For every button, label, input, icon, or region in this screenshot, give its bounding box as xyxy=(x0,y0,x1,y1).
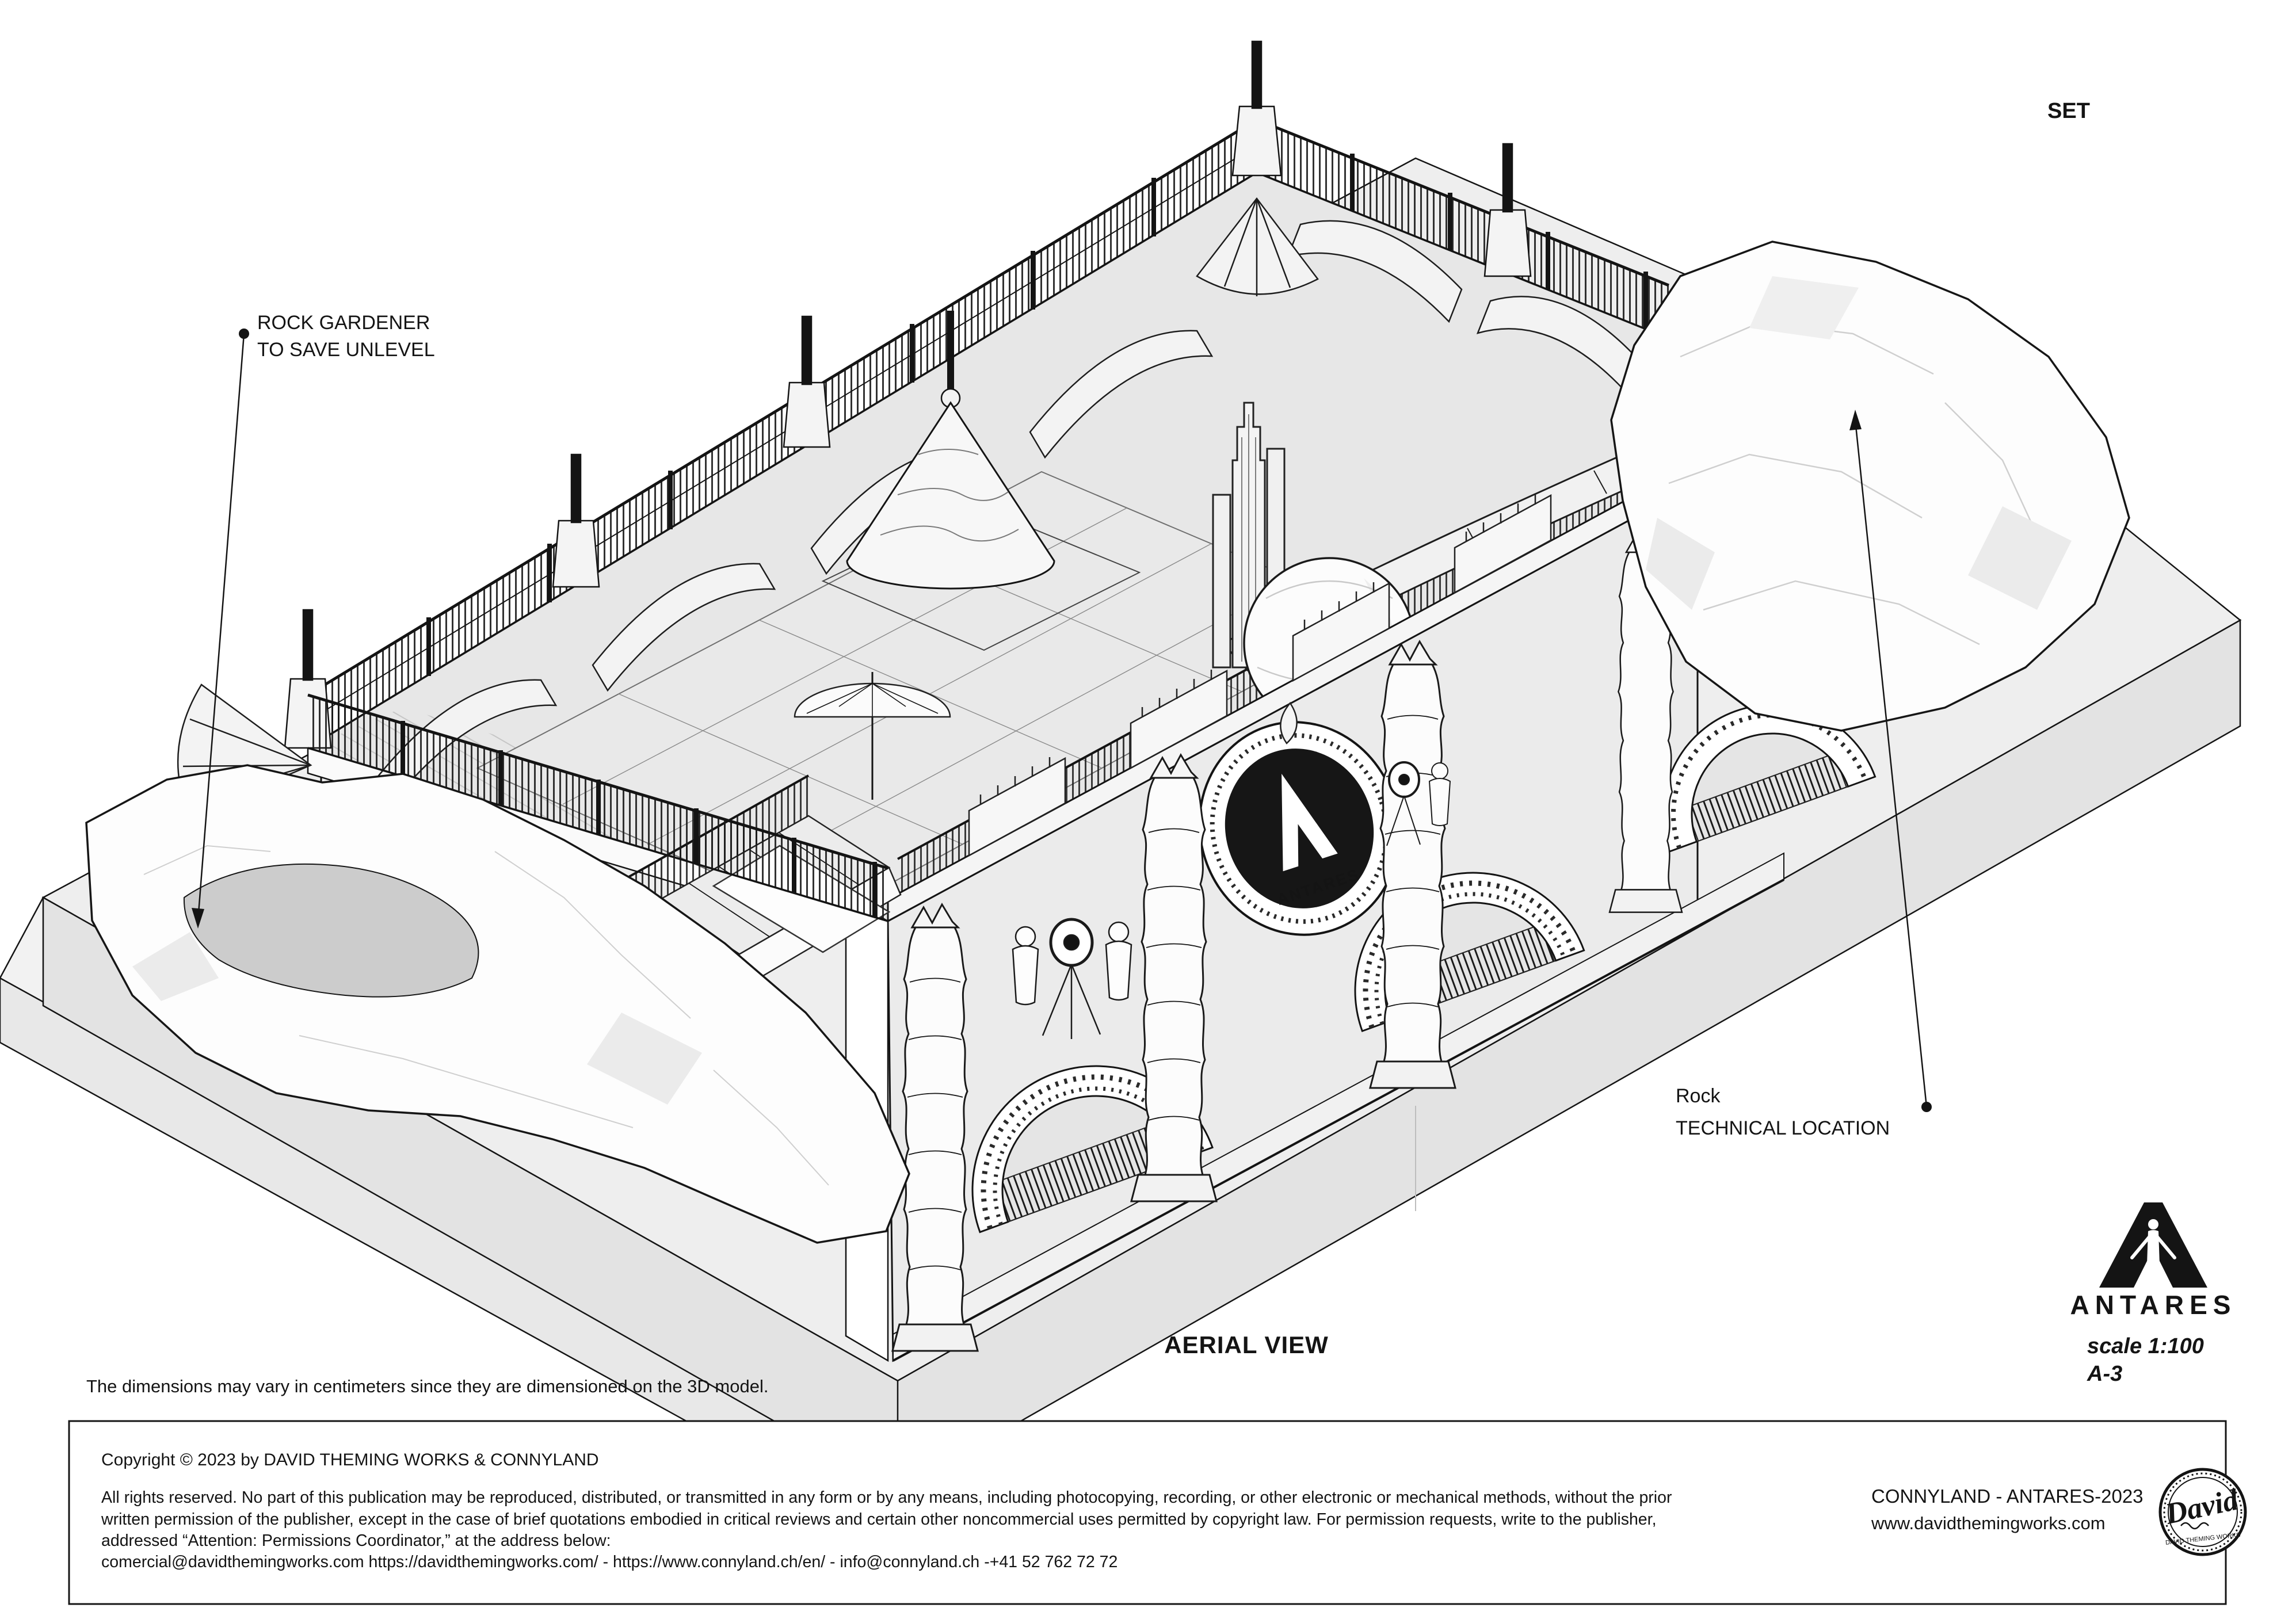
scale-label: scale 1:100 xyxy=(2087,1334,2204,1358)
copyright-line: Copyright © 2023 by DAVID THEMING WORKS … xyxy=(101,1450,599,1469)
aerial-view-label: AERIAL VIEW xyxy=(1164,1331,1329,1358)
antares-wordmark: ANTARES xyxy=(2070,1290,2237,1320)
rights-line-4: comercial@davidthemingworks.com https://… xyxy=(101,1553,1118,1571)
rights-line-1: All rights reserved. No part of this pub… xyxy=(101,1488,1672,1507)
rock-gardener-label-line2: TO SAVE UNLEVEL xyxy=(257,339,435,361)
rights-line-3: addressed “Attention: Permissions Coordi… xyxy=(101,1532,611,1550)
rock-gardener-label-line1: ROCK GARDENER xyxy=(257,312,430,334)
dimensions-disclaimer: The dimensions may vary in centimeters s… xyxy=(86,1376,768,1396)
rock-technical-label-line1: Rock xyxy=(1676,1085,1721,1107)
rock-technical-label-line2: TECHNICAL LOCATION xyxy=(1676,1117,1890,1139)
leader-dot xyxy=(1921,1102,1932,1112)
rights-line-2: written permission of the publisher, exc… xyxy=(101,1510,1657,1529)
project-label: CONNYLAND - ANTARES-2023 xyxy=(1871,1485,2144,1507)
technical-drawing-sheet: ANTARES xyxy=(0,0,2296,1623)
set-label: SET xyxy=(2047,99,2090,123)
title-block: Copyright © 2023 by DAVID THEMING WORKS … xyxy=(69,1421,2245,1604)
website-label: www.davidthemingworks.com xyxy=(1871,1513,2106,1533)
sheet-number: A-3 xyxy=(2087,1362,2122,1386)
leader-dot xyxy=(239,329,249,339)
david-stamp-icon: David DAVID THEMING WORKS xyxy=(2160,1469,2245,1555)
